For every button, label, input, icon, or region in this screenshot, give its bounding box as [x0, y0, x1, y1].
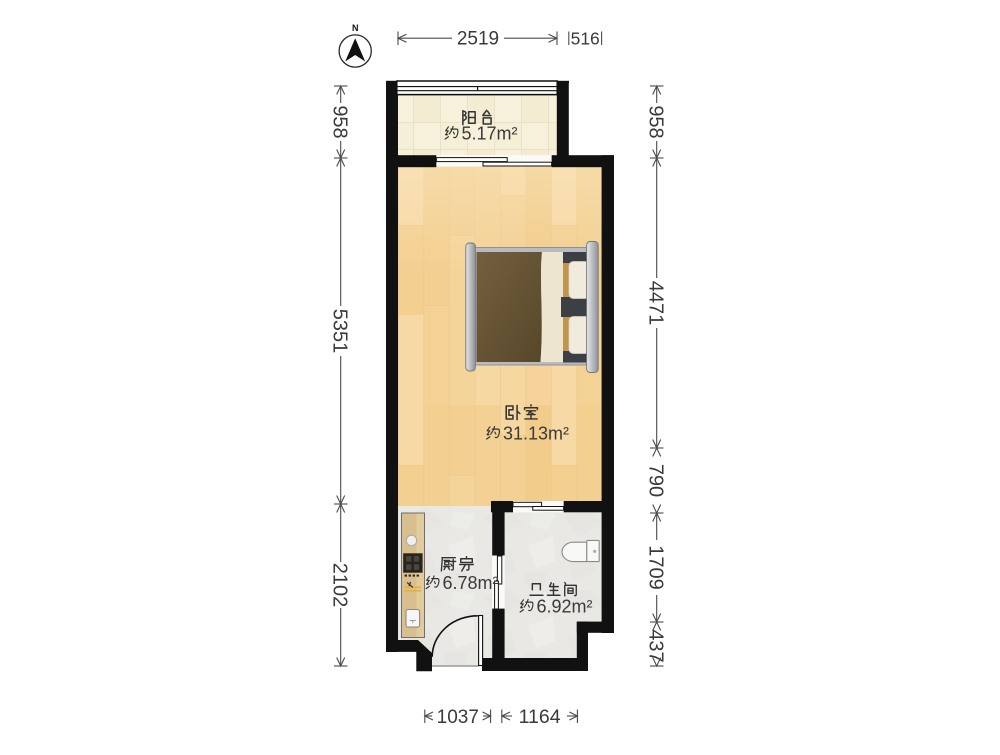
svg-text:4471: 4471: [645, 281, 667, 326]
svg-text:958: 958: [645, 105, 667, 138]
svg-text:1037: 1037: [437, 707, 479, 728]
svg-text:1164: 1164: [519, 706, 561, 728]
svg-text:2102: 2102: [329, 563, 351, 608]
svg-text:2519: 2519: [457, 29, 499, 50]
svg-text:N: N: [352, 23, 359, 33]
svg-text:790: 790: [645, 464, 667, 497]
svg-text:31.13m²: 31.13m²: [503, 424, 569, 444]
svg-text:516: 516: [571, 29, 600, 49]
svg-text:1709: 1709: [645, 545, 667, 590]
svg-text:958: 958: [329, 105, 351, 138]
svg-text:6.92m²: 6.92m²: [537, 597, 593, 617]
svg-text:5.17m²: 5.17m²: [462, 124, 518, 144]
svg-text:437: 437: [645, 629, 667, 662]
svg-text:5351: 5351: [329, 309, 351, 354]
svg-text:6.78m²: 6.78m²: [443, 573, 499, 593]
